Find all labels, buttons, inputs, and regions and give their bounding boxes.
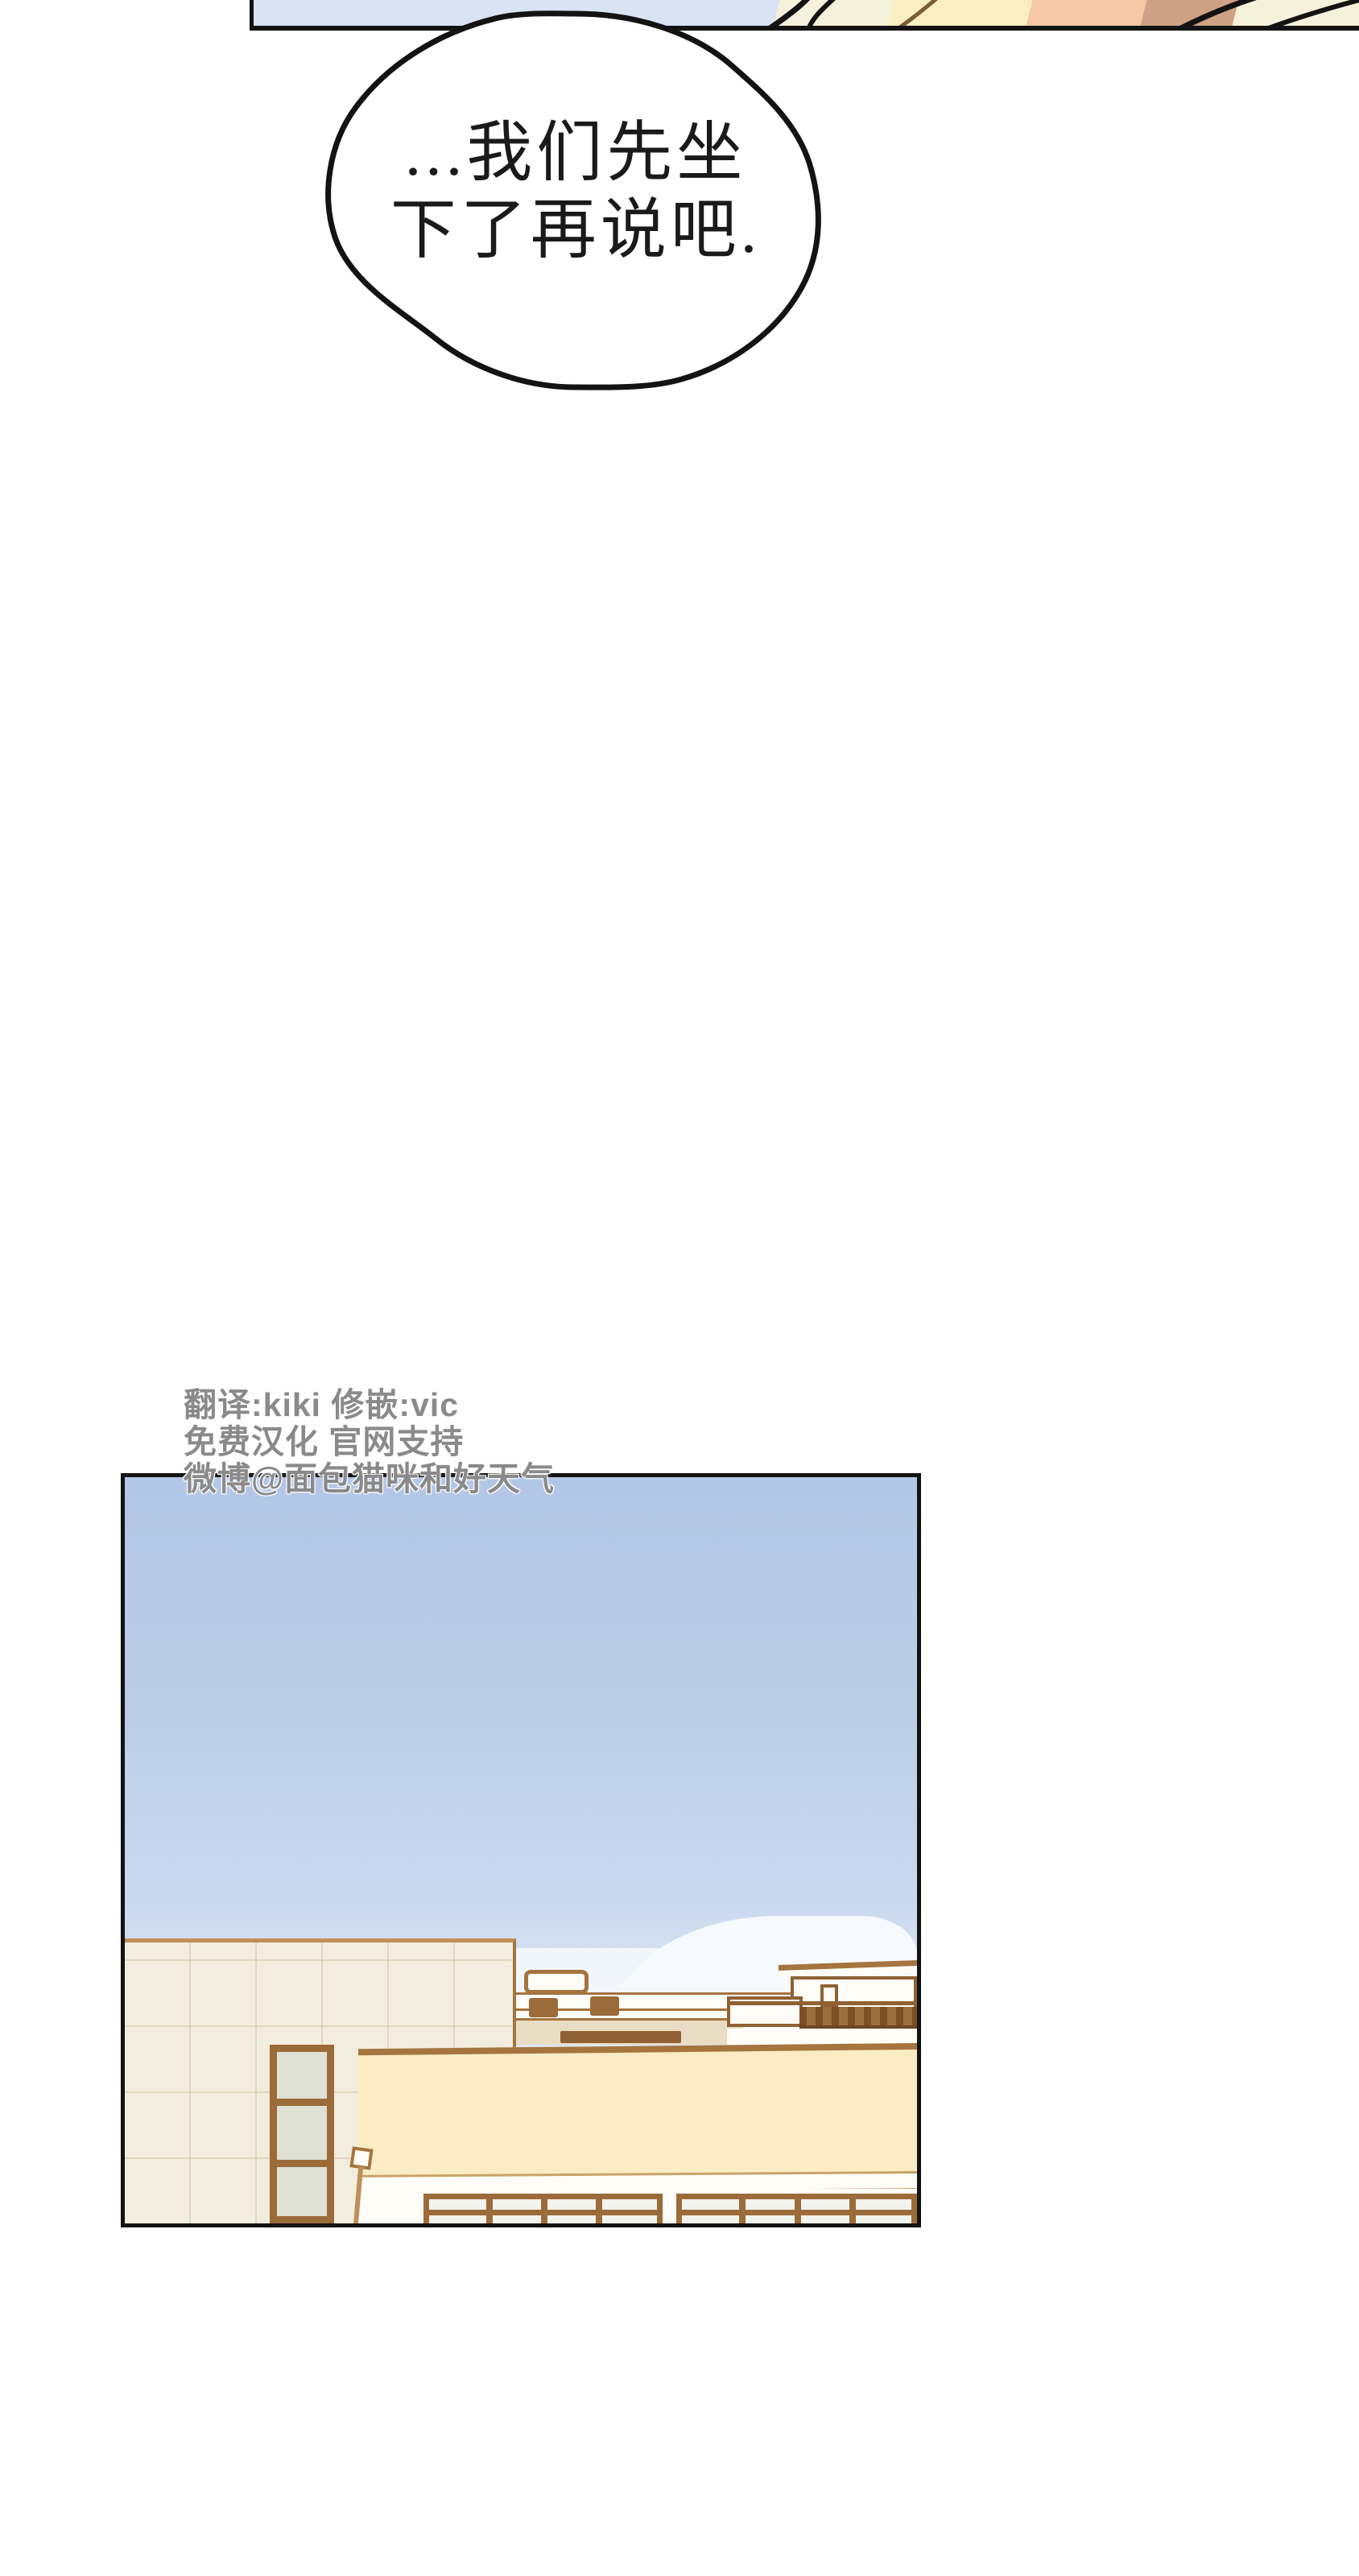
window-mullion (682, 2210, 911, 2215)
balcony-slats (799, 2007, 917, 2029)
awning (358, 2043, 917, 2179)
tall-window (270, 2045, 334, 2223)
window-row (423, 2194, 663, 2223)
scene-panel (121, 1473, 921, 2227)
vent-block (590, 1996, 619, 2016)
vent-block (529, 1998, 558, 2017)
translator-credits: 翻译:kiki 修嵌:vic 免费汉化 官网支持 微博@面包猫咪和好天气 (184, 1386, 555, 1497)
wall-ledge (516, 2018, 743, 2045)
speech-line-1: ...我们先坐 (310, 114, 841, 192)
building-right-band (727, 2029, 917, 2045)
credits-line-1: 翻译:kiki 修嵌:vic (184, 1386, 555, 1423)
balcony-rail (727, 2001, 917, 2005)
rooftop-pipe (524, 1970, 589, 1994)
credits-line-2: 免费汉化 官网支持 (184, 1423, 555, 1460)
comic-page: ...我们先坐 下了再说吧. 翻译:kiki 修嵌:vic 免费汉化 官网支持 … (0, 0, 1359, 2576)
ledge-block (560, 2031, 681, 2043)
speech-line-2: 下了再说吧. (310, 192, 841, 269)
window-mullion (429, 2210, 657, 2215)
speech-bubble-text: ...我们先坐 下了再说吧. (310, 114, 841, 269)
window-mullion (277, 2160, 327, 2167)
credits-line-3: 微博@面包猫咪和好天气 (184, 1460, 555, 1497)
window-row (676, 2194, 917, 2223)
window-mullion (277, 2099, 327, 2106)
